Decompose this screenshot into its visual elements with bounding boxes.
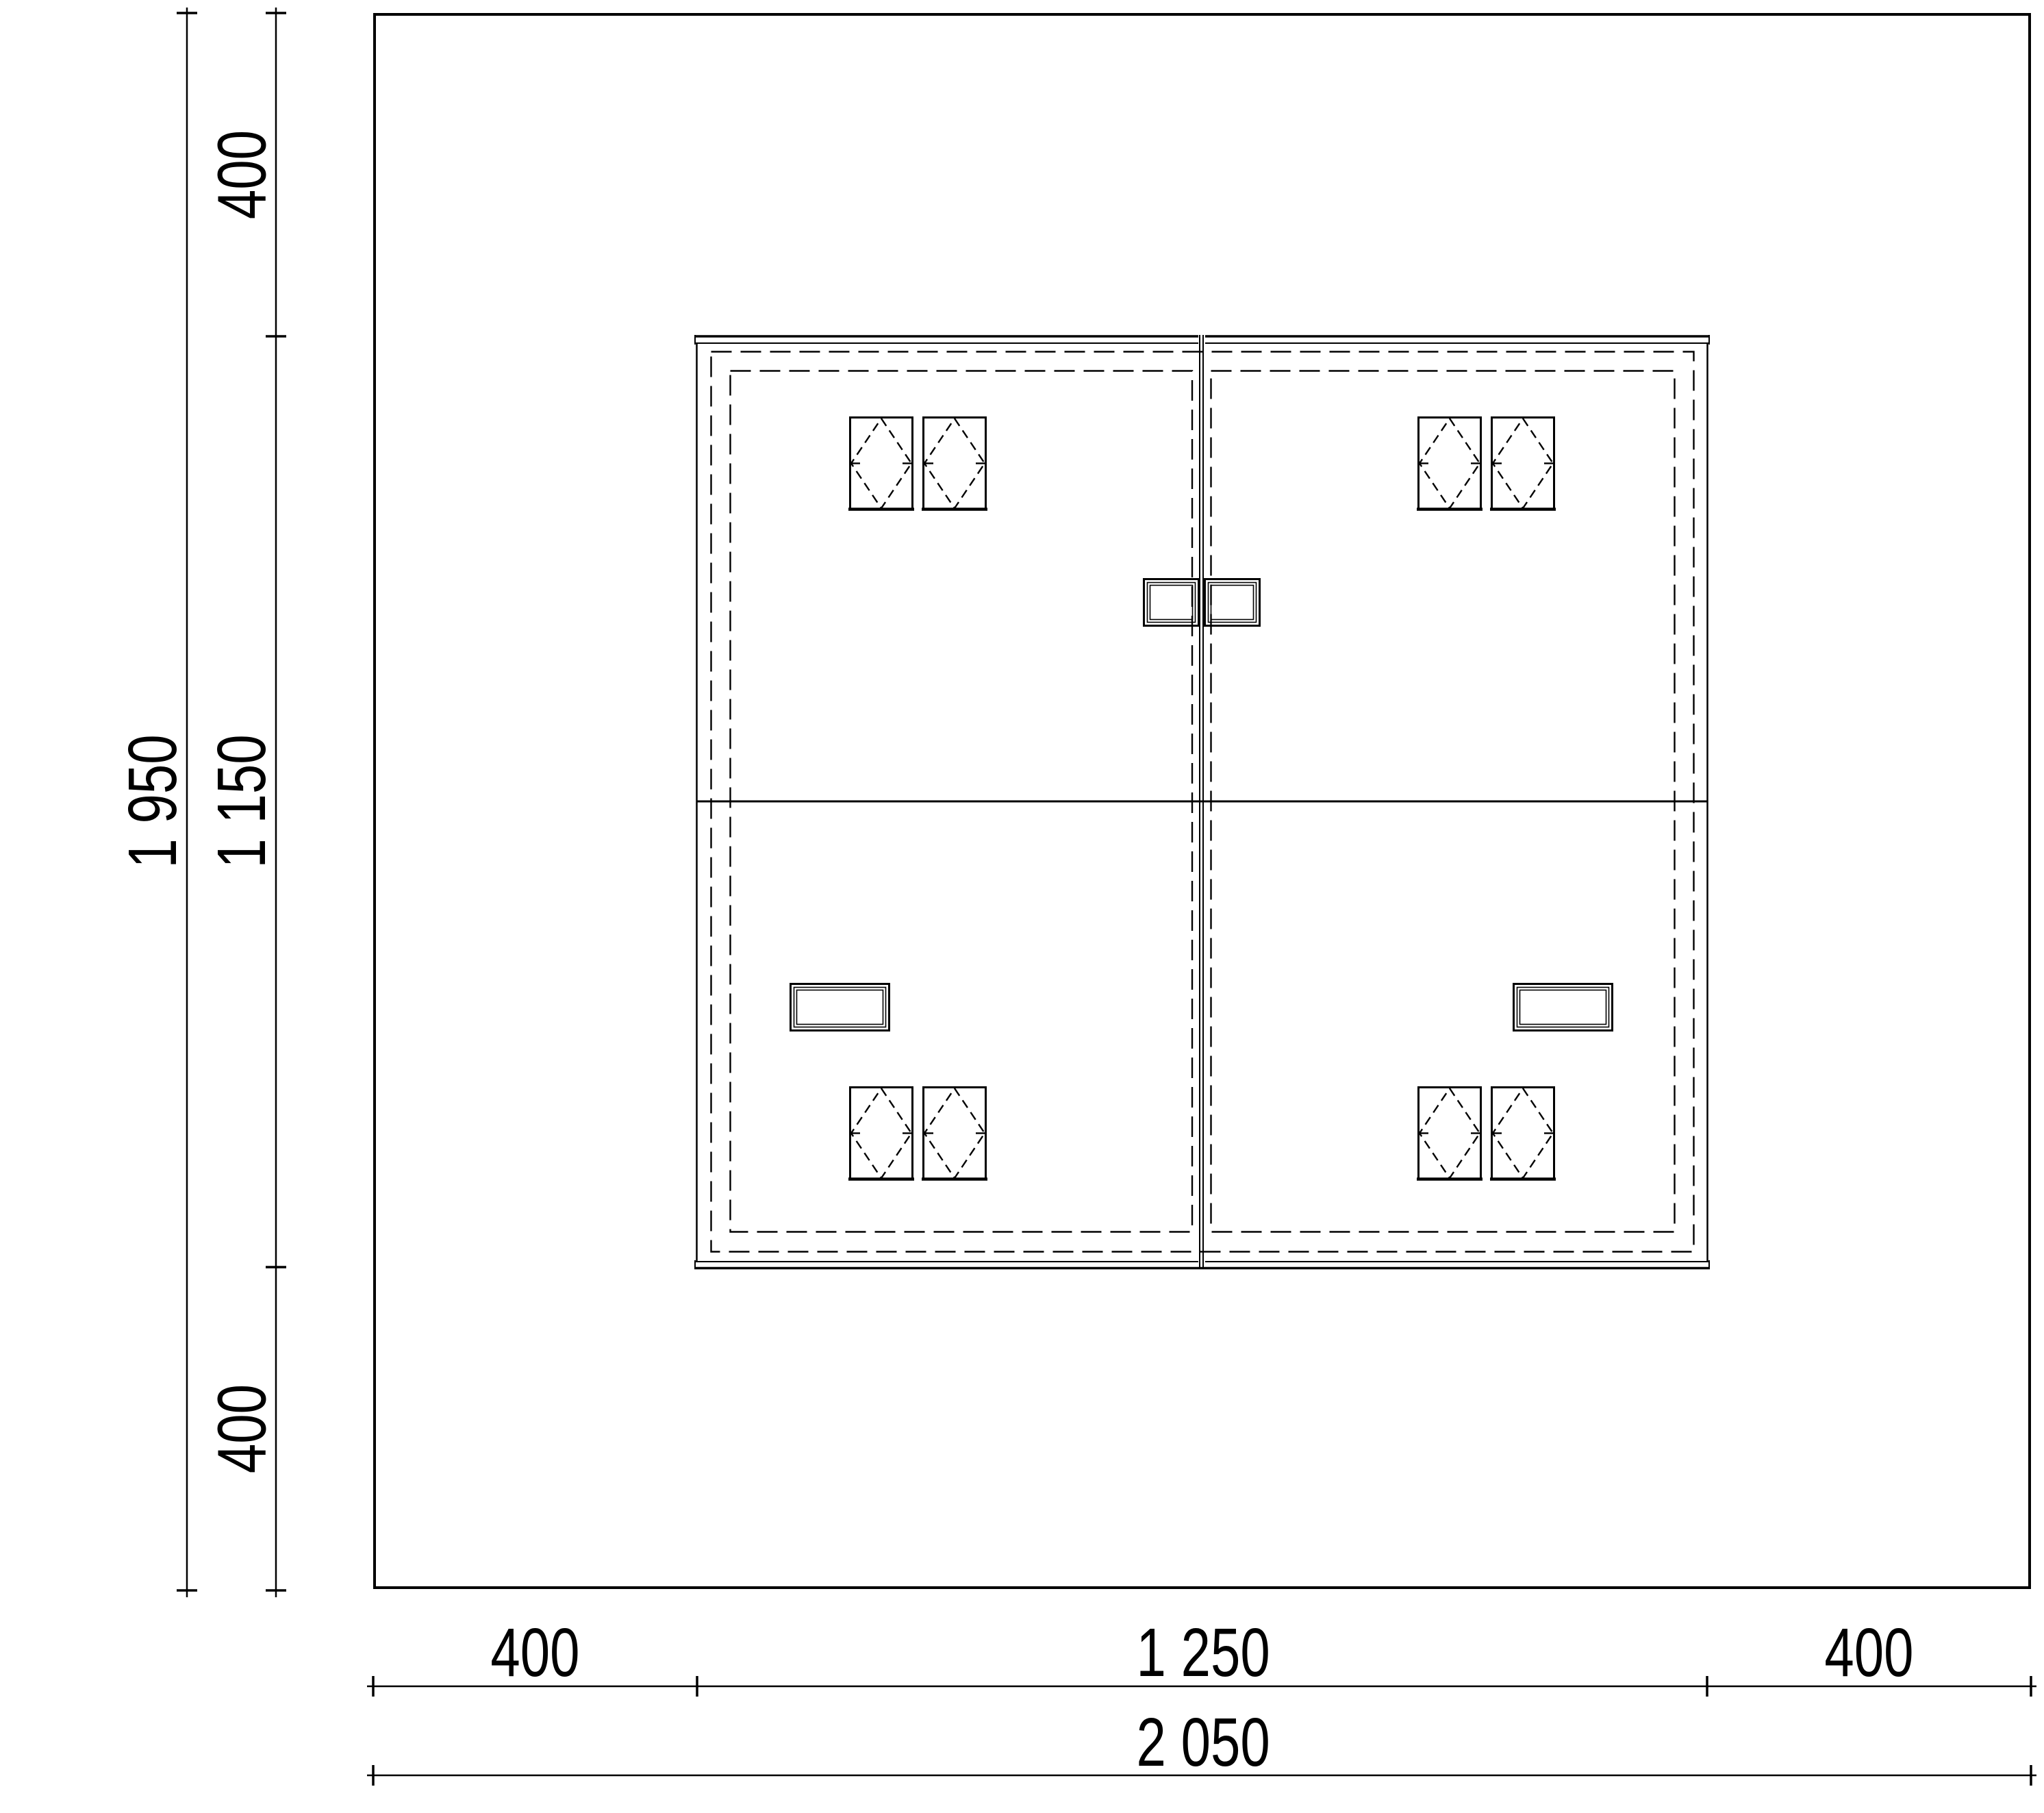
dim-label-bottom-right: 400	[1824, 1618, 1913, 1687]
diamond-hatch-box	[1490, 418, 1556, 510]
dim-label-bottom-total: 2 050	[1136, 1708, 1270, 1777]
dim-label-left-bottom: 400	[207, 1384, 276, 1473]
dim-label-bottom-left: 400	[490, 1618, 579, 1687]
double-frame-box	[1144, 579, 1199, 626]
dim-label-bottom-middle: 1 250	[1136, 1618, 1270, 1687]
double-frame-box	[1205, 579, 1260, 626]
diamond-hatch-box	[922, 1088, 987, 1179]
plan-outline	[694, 335, 1710, 1269]
diamond-hatch-boxes	[848, 418, 1556, 1179]
double-frame-box	[791, 984, 889, 1031]
dim-label-left-middle: 1 150	[207, 734, 276, 868]
double-frame-box	[1514, 984, 1613, 1031]
diamond-hatch-box	[848, 418, 914, 510]
diamond-hatch-box	[1417, 418, 1482, 510]
drawing-sheet: 1 950 400 1 150 400 400 1 250 400 2 050	[0, 0, 2044, 1813]
side-frame-boxes	[791, 984, 1613, 1031]
diamond-hatch-box	[848, 1088, 914, 1179]
diamond-hatch-box	[1417, 1088, 1482, 1179]
plan-linework	[0, 0, 2044, 1813]
dim-label-left-total: 1 950	[118, 734, 187, 868]
diamond-hatch-box	[1490, 1088, 1556, 1179]
dim-label-left-top: 400	[207, 130, 276, 219]
diamond-hatch-box	[922, 418, 987, 510]
center-frame-boxes	[1144, 579, 1260, 626]
